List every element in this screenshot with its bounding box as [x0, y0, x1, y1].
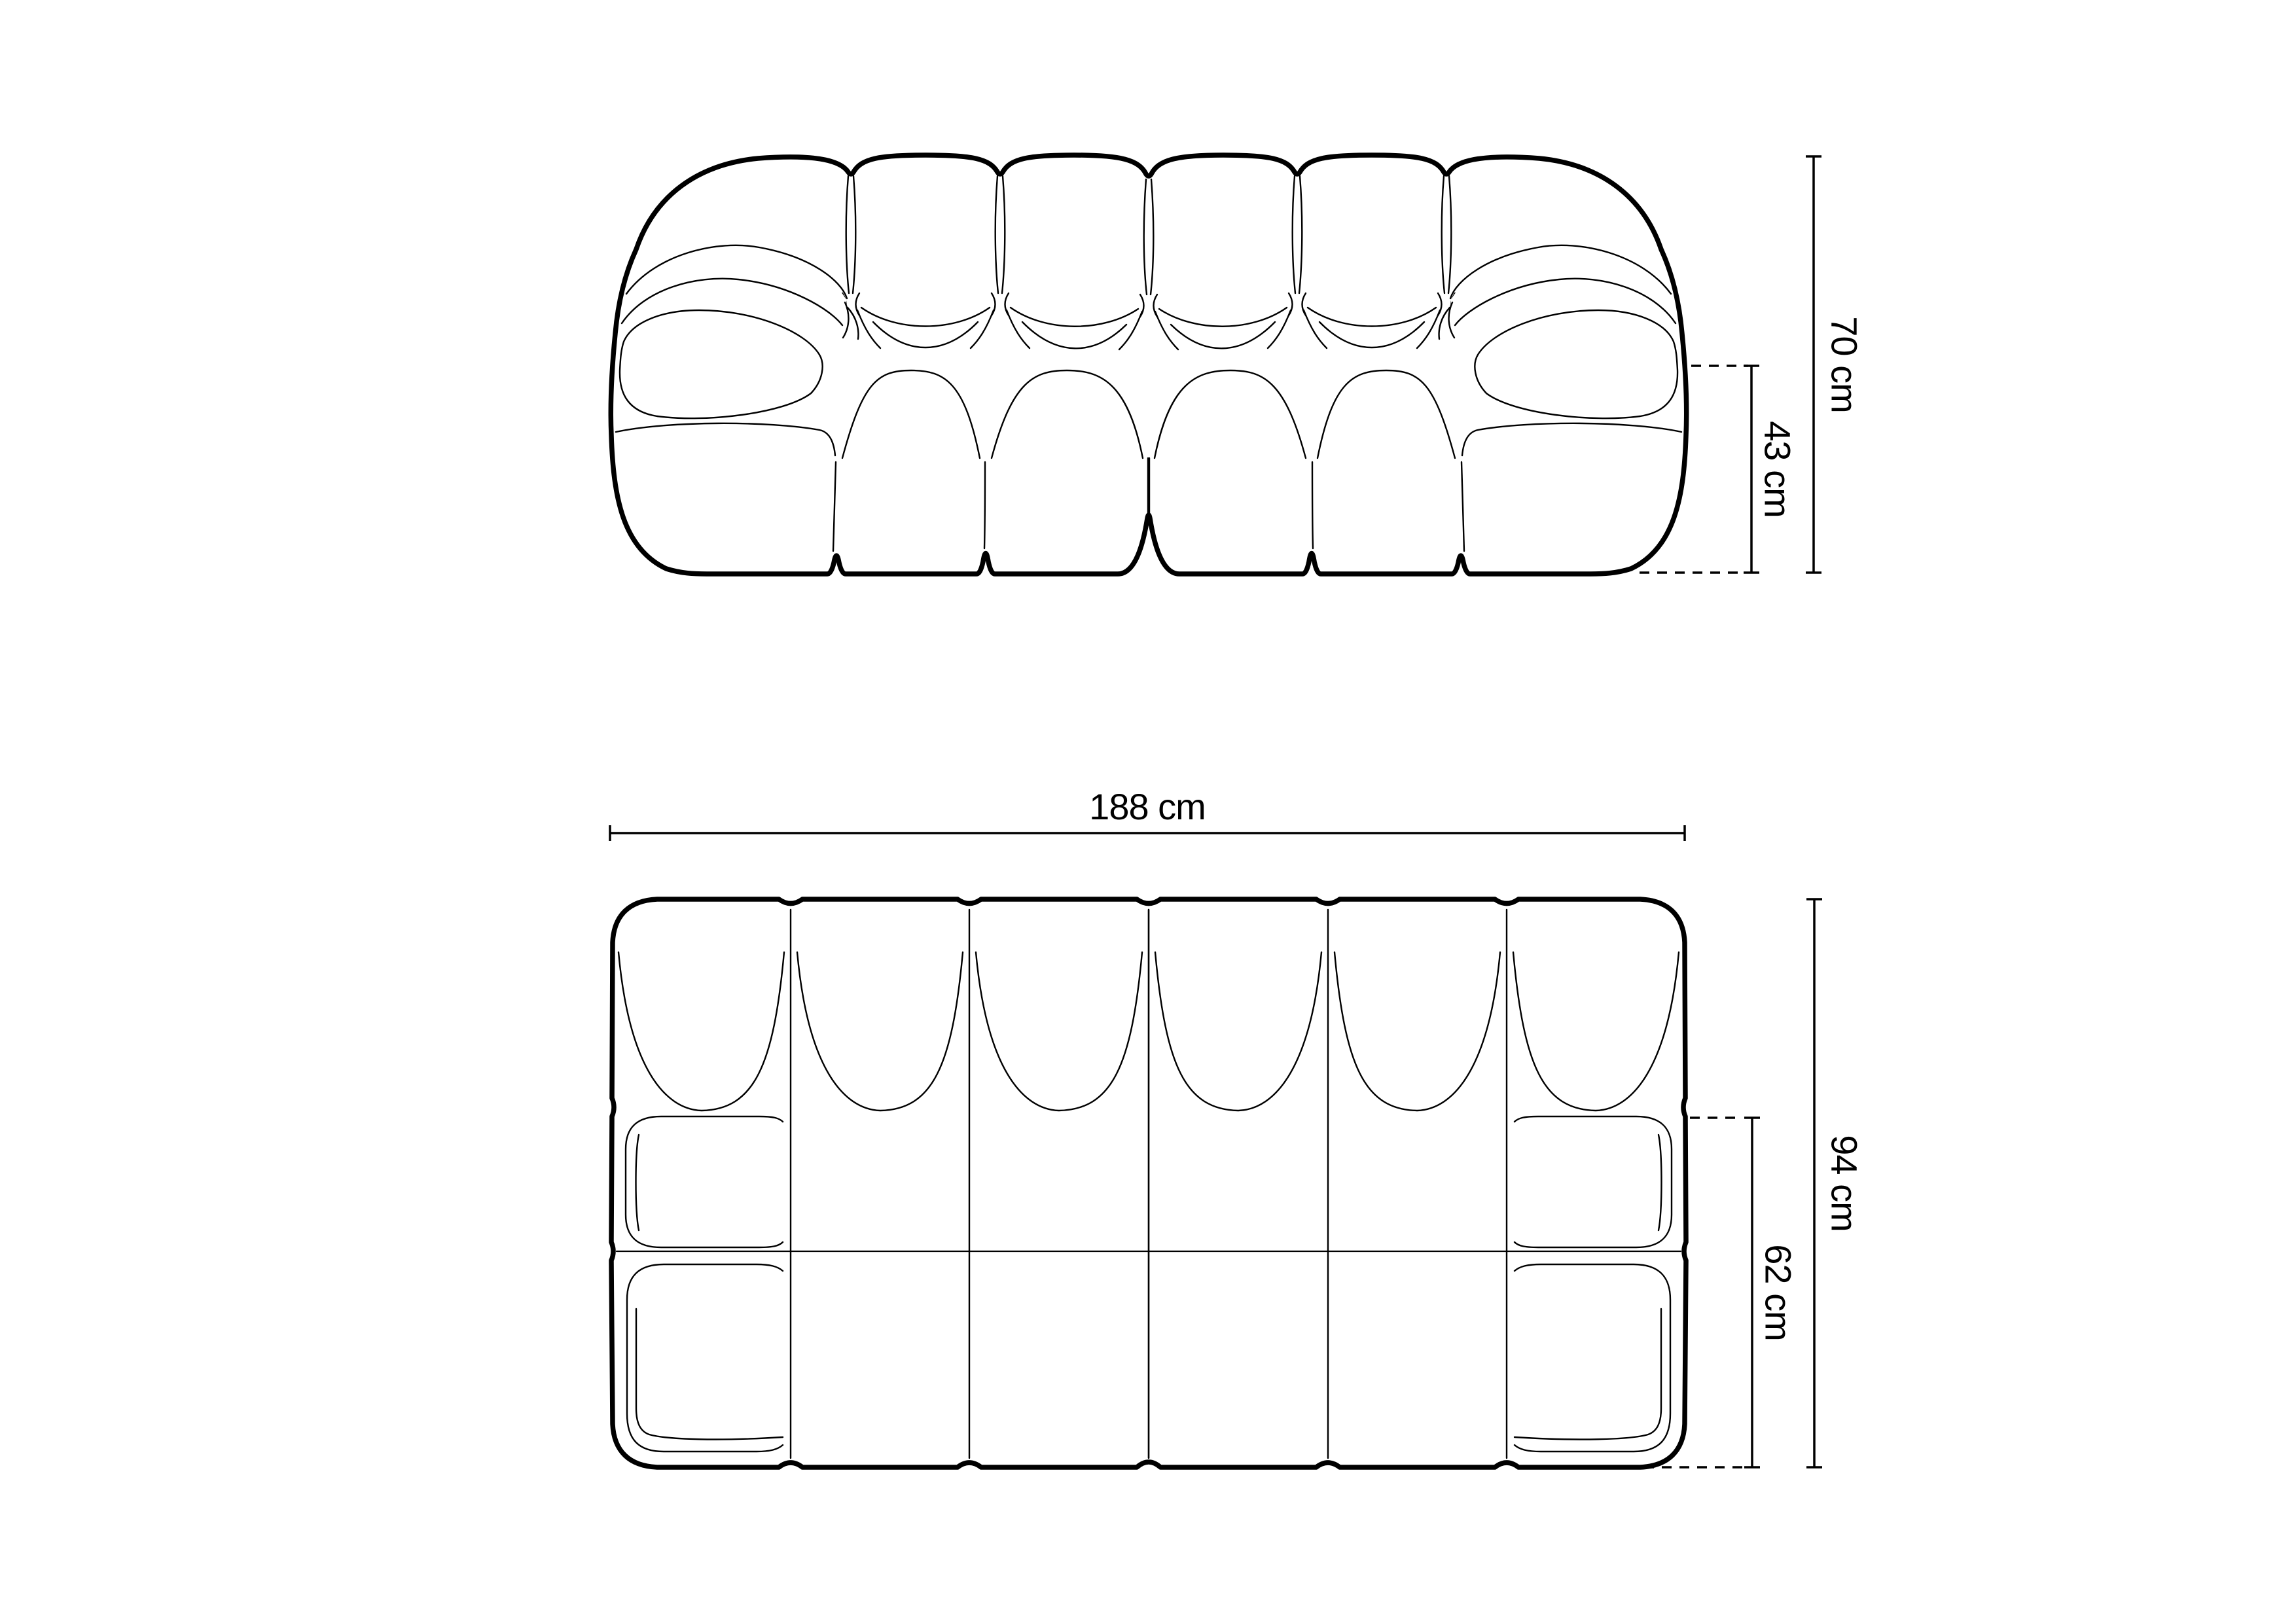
plan-armrest-inset-bottom-accent: [636, 1309, 783, 1439]
dimension-seat-depth: 62 cm: [1644, 1118, 1799, 1467]
arm-base-top-line: [616, 423, 835, 455]
label-total-width: 188 cm: [1089, 786, 1206, 827]
plan-back-cushion-arc: [619, 952, 784, 1111]
plan-view-right-half-details: [1149, 910, 1679, 1458]
plan-armrest-inset-middle-accent: [636, 1135, 639, 1230]
dimension-total-depth: 94 cm: [1806, 899, 1865, 1467]
roll-arc-upper: [861, 308, 990, 327]
diagram-svg: 70 cm 43 cm: [0, 0, 2296, 1623]
plan-view: 188 cm 94 cm 62 cm: [610, 786, 1865, 1467]
seat-seam: [833, 462, 836, 551]
back-seam: [1002, 176, 1005, 293]
back-seam: [853, 176, 855, 293]
front-view: 70 cm 43 cm: [611, 155, 1865, 574]
plan-back-cushion-arc: [976, 952, 1142, 1111]
back-seam: [846, 176, 849, 293]
plan-back-cushion-arc: [797, 952, 963, 1111]
seat-seam: [984, 462, 985, 548]
sofa-dimension-sheet: 70 cm 43 cm: [0, 0, 2296, 1623]
label-total-depth: 94 cm: [1823, 1135, 1865, 1232]
back-seam: [996, 176, 998, 293]
front-view-left-half-details: [616, 176, 1148, 551]
front-view-right-half-details: [1149, 176, 1681, 551]
seat-top-arc: [842, 370, 980, 458]
armrest-pinch: [848, 308, 858, 339]
plan-view-left-half-details: [619, 910, 1149, 1458]
plan-armrest-inset-bottom: [627, 1264, 783, 1452]
label-seat-height: 43 cm: [1757, 421, 1798, 518]
back-seam: [1144, 179, 1147, 294]
label-seat-depth: 62 cm: [1757, 1244, 1799, 1341]
label-total-height: 70 cm: [1823, 316, 1865, 413]
seat-top-arc: [992, 370, 1143, 458]
roll-arc-upper: [1011, 308, 1138, 327]
dimension-seat-height: 43 cm: [1744, 366, 1798, 573]
plan-armrest-inset-middle: [626, 1116, 783, 1247]
dimension-total-width: 188 cm: [610, 786, 1685, 841]
